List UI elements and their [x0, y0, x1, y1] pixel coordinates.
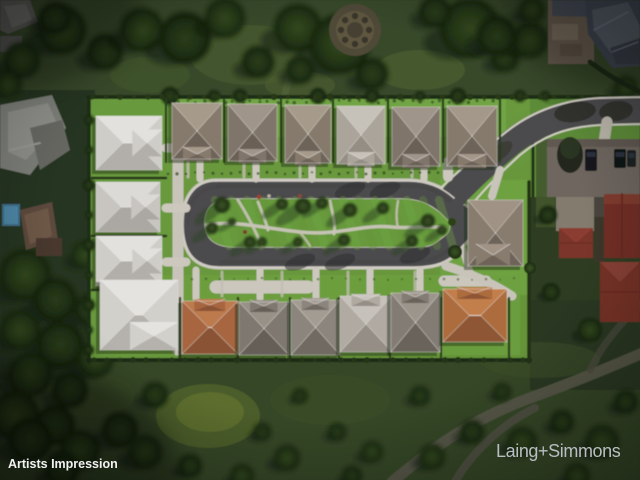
svg-text:Laing+Simmons: Laing+Simmons [496, 441, 621, 461]
svg-text:Artists Impression: Artists Impression [8, 457, 118, 471]
